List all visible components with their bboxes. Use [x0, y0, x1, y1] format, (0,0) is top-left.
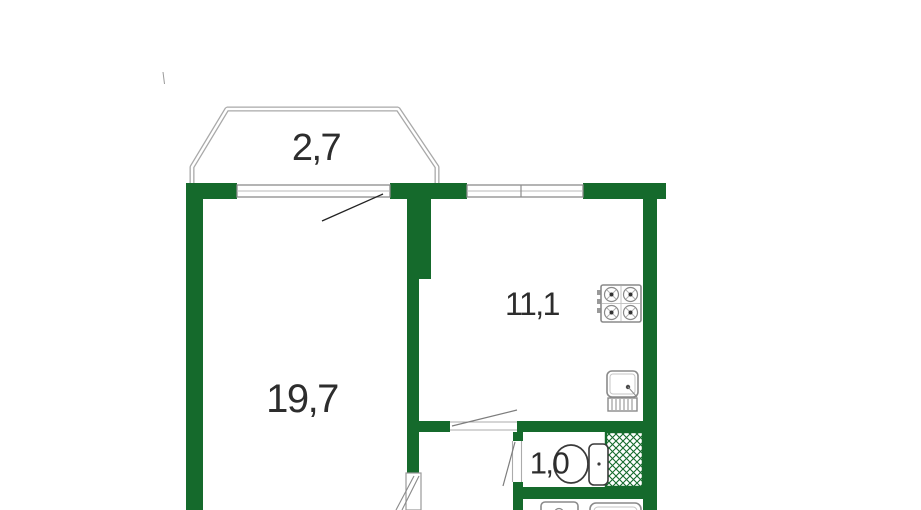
- wall-interior-thin: [407, 279, 419, 473]
- wall-segment: [390, 183, 467, 199]
- wall-segment: [517, 421, 643, 432]
- kitchen-sink-icon: [607, 371, 638, 411]
- artifact-mark: [163, 72, 165, 84]
- vent-shaft: [606, 432, 643, 487]
- vent-shaft-hatch: [606, 432, 643, 487]
- wall-segment: [583, 183, 666, 199]
- toilet-cistern-dot: [597, 462, 600, 465]
- wall-wc-left-stub: [513, 432, 523, 441]
- wall-wc-bottom: [513, 487, 657, 499]
- wall-interior-thick: [407, 199, 431, 279]
- burner-dot: [629, 311, 633, 315]
- living-room-window: [237, 185, 390, 197]
- burner-dot: [610, 293, 614, 297]
- wc-area-label: 1,0: [530, 448, 569, 479]
- door-leaf: [452, 410, 517, 426]
- floor-plan-drawing: [0, 0, 921, 510]
- washbasin-icon: [541, 502, 578, 510]
- wall-right: [643, 199, 657, 510]
- burner-dot: [629, 293, 633, 297]
- burner-dot: [610, 311, 614, 315]
- kitchen-area-label: 11,1: [505, 288, 559, 320]
- door-frame: [406, 473, 421, 510]
- wall-left: [186, 183, 203, 510]
- kitchen-door: [450, 410, 517, 430]
- wall-segment: [419, 421, 450, 432]
- balcony-area-label: 2,7: [292, 129, 340, 167]
- kitchen-window: [467, 185, 583, 197]
- living-room-door: [396, 473, 421, 510]
- bathtub-icon: [590, 503, 641, 510]
- living-room-area-label: 19,7: [266, 379, 338, 419]
- floor-plan: 2,7 19,7 11,1 1,0: [0, 0, 921, 510]
- balcony-door-leaf: [322, 194, 383, 221]
- wc-door: [503, 441, 523, 486]
- stove-icon: [597, 285, 641, 322]
